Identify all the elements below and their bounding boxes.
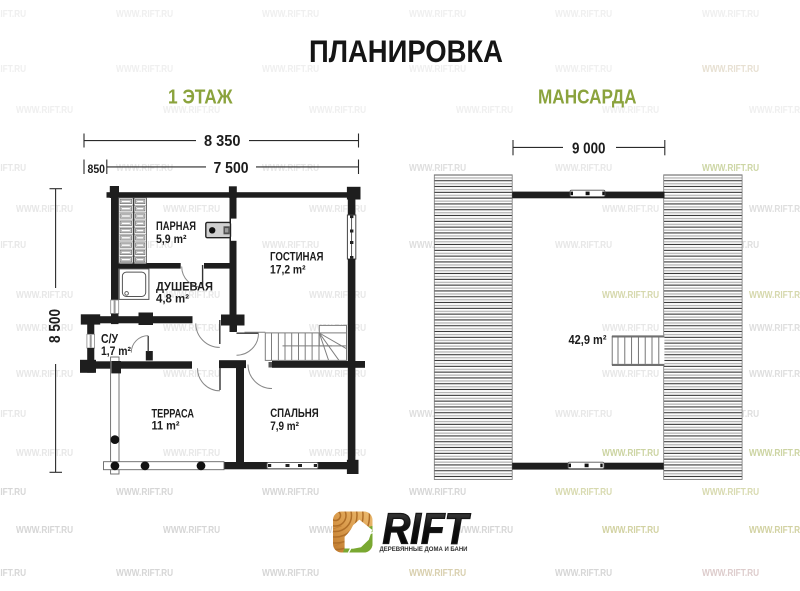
svg-text:4,8 m²: 4,8 m² (156, 291, 189, 305)
svg-text:1,7 m²: 1,7 m² (101, 344, 131, 358)
svg-text:9 000: 9 000 (572, 141, 606, 158)
svg-text:ПАРНАЯ: ПАРНАЯ (156, 219, 196, 233)
svg-text:8 350: 8 350 (204, 133, 241, 150)
svg-text:850: 850 (88, 162, 106, 176)
svg-text:СПАЛЬНЯ: СПАЛЬНЯ (270, 406, 319, 420)
svg-text:ПЛАНИРОВКА: ПЛАНИРОВКА (309, 33, 503, 69)
svg-text:7 500: 7 500 (214, 160, 249, 177)
svg-text:11 m²: 11 m² (152, 419, 180, 433)
svg-text:ДЕРЕВЯННЫЕ ДОМА И БАНИ: ДЕРЕВЯННЫЕ ДОМА И БАНИ (380, 546, 468, 553)
svg-text:МАНСАРДА: МАНСАРДА (538, 86, 637, 109)
svg-text:42,9 m²: 42,9 m² (569, 333, 607, 347)
svg-text:ГОСТИНАЯ: ГОСТИНАЯ (270, 250, 324, 264)
svg-text:8 500: 8 500 (47, 309, 64, 343)
svg-text:5,9 m²: 5,9 m² (156, 232, 187, 246)
svg-text:17,2 m²: 17,2 m² (270, 263, 306, 277)
svg-text:1 ЭТАЖ: 1 ЭТАЖ (168, 85, 233, 108)
svg-text:7,9 m²: 7,9 m² (270, 419, 299, 433)
